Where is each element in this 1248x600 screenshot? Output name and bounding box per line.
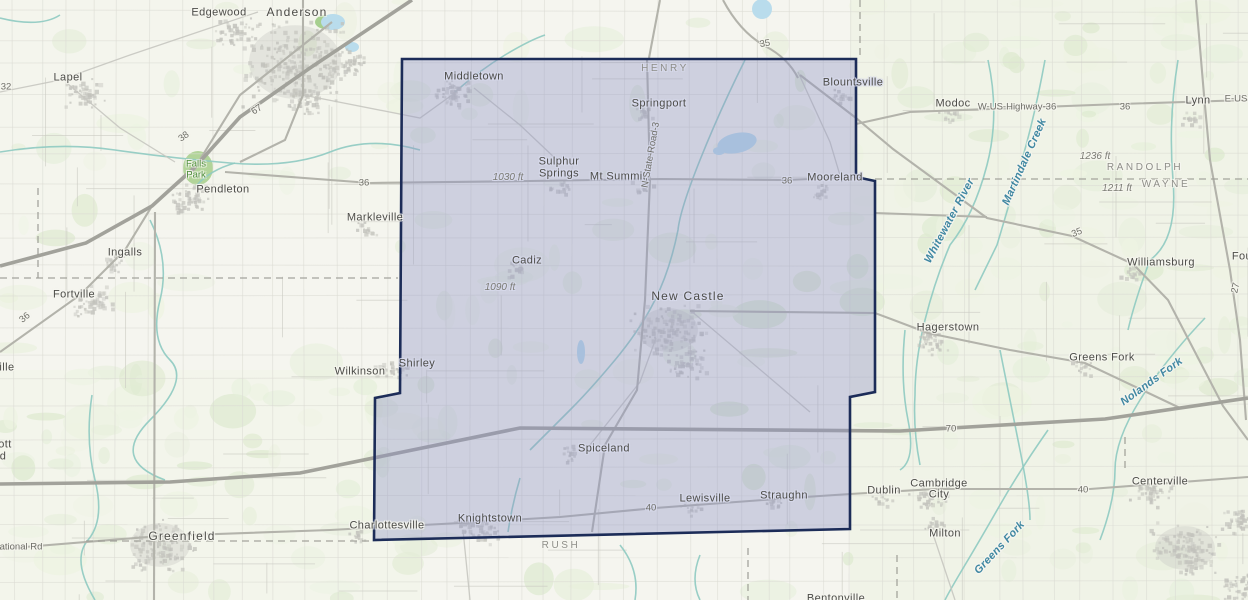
- map-canvas[interactable]: AndersonEdgewoodLapelPendletonIngallsFor…: [0, 0, 1248, 600]
- topo-map: [0, 0, 1248, 600]
- selected-county-highlight[interactable]: [374, 59, 875, 540]
